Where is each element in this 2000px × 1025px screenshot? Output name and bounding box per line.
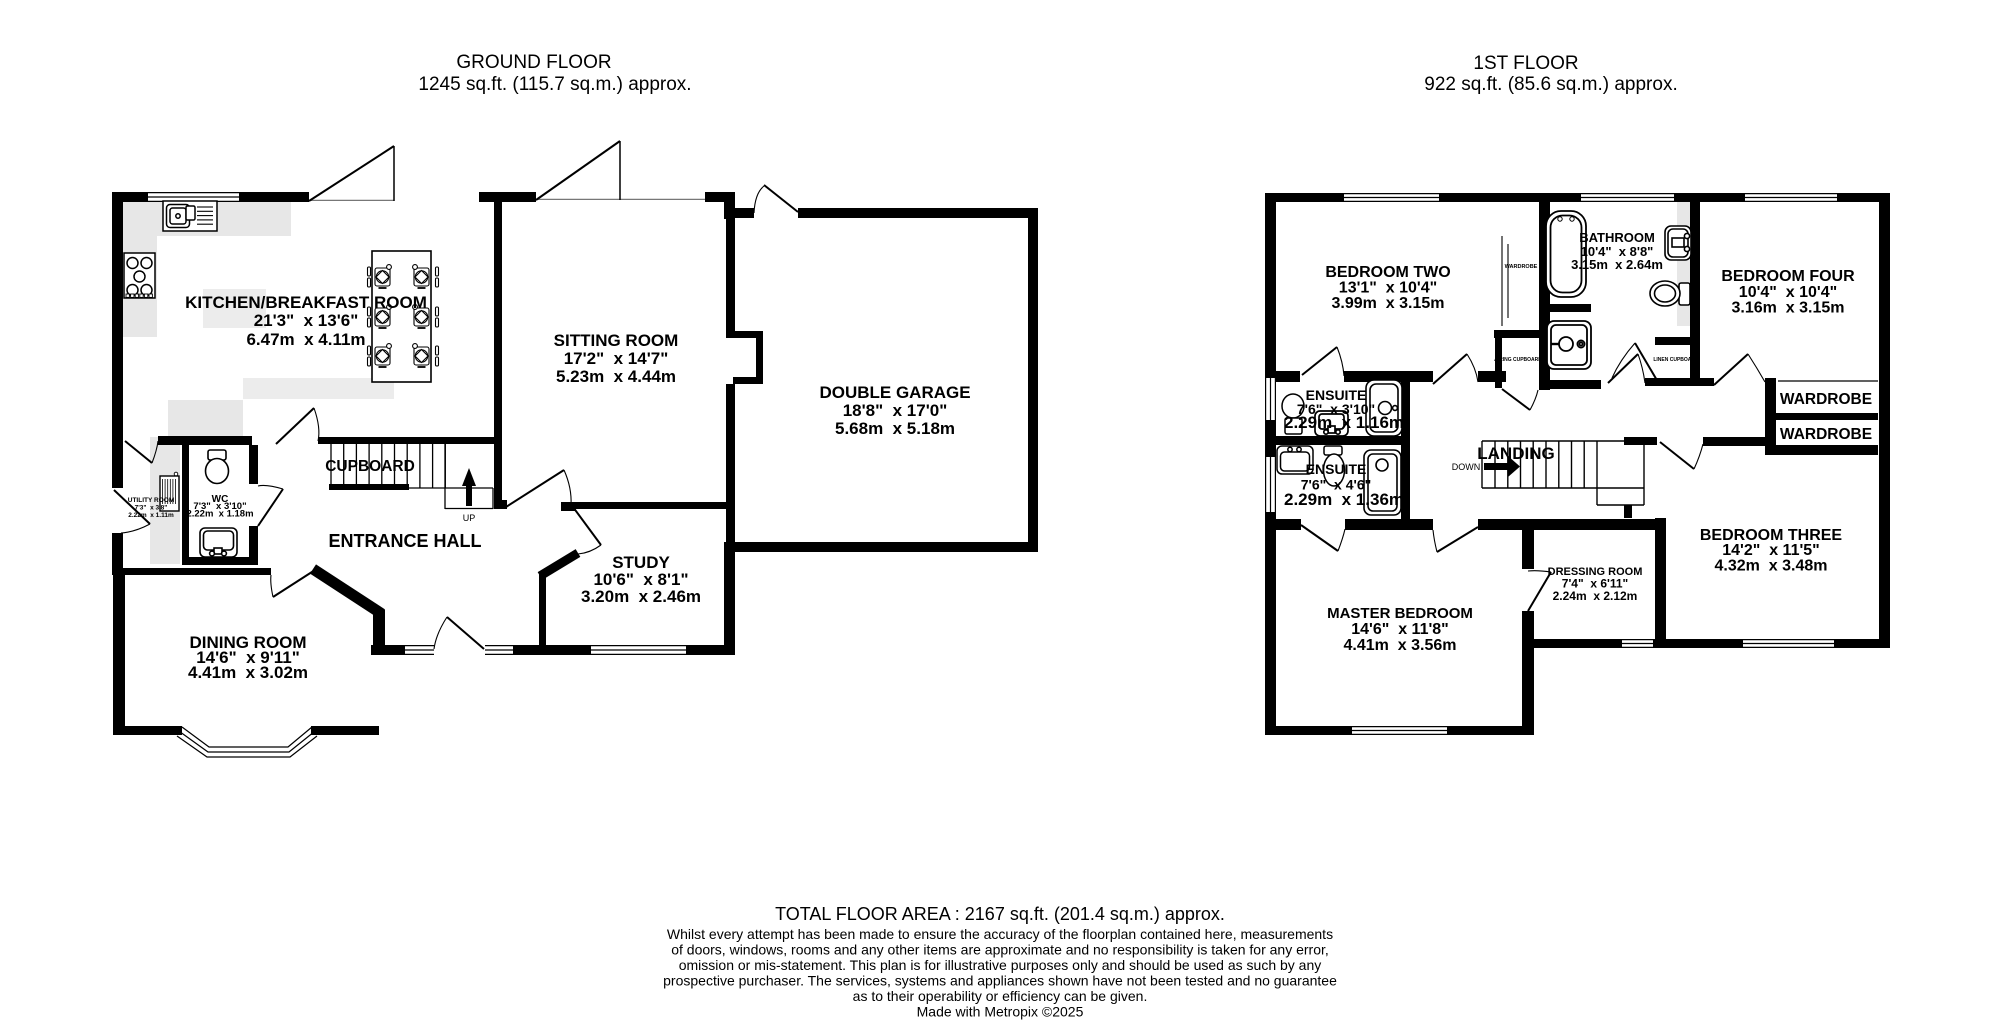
svg-text:BEDROOM FOUR: BEDROOM FOUR (1721, 268, 1855, 285)
svg-text:13'1" x 10'4": 13'1" x 10'4" (1339, 280, 1437, 297)
svg-text:4.41m x 3.02m: 4.41m x 3.02m (188, 663, 308, 682)
svg-text:1ST FLOOR: 1ST FLOOR (1473, 53, 1578, 74)
svg-text:14'6" x 11'8": 14'6" x 11'8" (1351, 621, 1449, 638)
svg-text:4.41m x 3.56m: 4.41m x 3.56m (1344, 637, 1457, 654)
svg-text:BATHROOM: BATHROOM (1579, 230, 1655, 245)
svg-text:3.99m x 3.15m: 3.99m x 3.15m (1332, 295, 1445, 312)
svg-text:WARDROBE: WARDROBE (1505, 264, 1538, 270)
svg-text:TOTAL FLOOR AREA : 2167 sq.ft.: TOTAL FLOOR AREA : 2167 sq.ft. (201.4 sq… (775, 904, 1225, 924)
svg-text:LANDING: LANDING (1477, 444, 1554, 463)
svg-text:ENTRANCE HALL: ENTRANCE HALL (329, 531, 482, 551)
svg-text:21'3" x 13'6": 21'3" x 13'6" (254, 311, 359, 330)
svg-text:5.68m x 5.18m: 5.68m x 5.18m (835, 419, 955, 438)
svg-text:AIRING CUPBOARD: AIRING CUPBOARD (1494, 357, 1542, 363)
svg-text:3.20m x 2.46m: 3.20m x 2.46m (581, 587, 701, 606)
svg-text:6.47m x 4.11m: 6.47m x 4.11m (246, 330, 365, 349)
svg-text:17'2" x 14'7": 17'2" x 14'7" (564, 349, 669, 368)
svg-text:7'3" x 3'8": 7'3" x 3'8" (135, 505, 168, 512)
svg-text:DOWN: DOWN (1452, 462, 1481, 472)
svg-text:Whilst every attempt has been: Whilst every attempt has been made to en… (667, 926, 1333, 942)
svg-text:prospective purchaser. The ser: prospective purchaser. The services, sys… (663, 973, 1337, 989)
svg-text:3.15m x 2.64m: 3.15m x 2.64m (1571, 257, 1663, 272)
svg-text:as to their operability or eff: as to their operability or efficiency ca… (853, 988, 1148, 1004)
svg-text:10'4" x 10'4": 10'4" x 10'4" (1739, 284, 1837, 301)
svg-text:2.29m x 1.36m: 2.29m x 1.36m (1284, 490, 1404, 509)
svg-text:3.16m x 3.15m: 3.16m x 3.15m (1732, 300, 1845, 317)
svg-text:LINEN CUPBOARD: LINEN CUPBOARD (1653, 357, 1699, 363)
svg-text:ENSUITE: ENSUITE (1306, 461, 1367, 477)
svg-text:BEDROOM TWO: BEDROOM TWO (1325, 264, 1450, 281)
svg-text:UTILITY ROOM: UTILITY ROOM (128, 497, 174, 504)
svg-text:4.32m x 3.48m: 4.32m x 3.48m (1715, 558, 1828, 575)
svg-text:5.23m x 4.44m: 5.23m x 4.44m (556, 367, 676, 386)
svg-text:Made with Metropix ©2025: Made with Metropix ©2025 (917, 1004, 1084, 1020)
svg-text:WARDROBE: WARDROBE (1780, 391, 1872, 408)
svg-text:WARDROBE: WARDROBE (1780, 426, 1872, 443)
svg-text:UP: UP (463, 513, 476, 523)
svg-text:1245 sq.ft. (115.7 sq.m.) appr: 1245 sq.ft. (115.7 sq.m.) approx. (418, 74, 691, 95)
svg-text:2.24m x 2.12m: 2.24m x 2.12m (1553, 589, 1638, 603)
svg-text:2.22m x 1.18m: 2.22m x 1.18m (186, 509, 253, 520)
svg-text:omission or mis-statement. Thi: omission or mis-statement. This plan is … (679, 957, 1322, 973)
svg-text:DOUBLE GARAGE: DOUBLE GARAGE (819, 383, 970, 402)
svg-text:2.29m x 1.16m: 2.29m x 1.16m (1284, 413, 1404, 432)
svg-text:KITCHEN/BREAKFAST ROOM: KITCHEN/BREAKFAST ROOM (185, 293, 427, 312)
svg-text:GROUND FLOOR: GROUND FLOOR (456, 52, 611, 73)
svg-text:CUPBOARD: CUPBOARD (325, 458, 415, 475)
svg-text:14'2" x 11'5": 14'2" x 11'5" (1722, 542, 1820, 559)
svg-text:922 sq.ft. (85.6 sq.m.) approx: 922 sq.ft. (85.6 sq.m.) approx. (1424, 74, 1677, 95)
svg-text:2.22m x 1.11m: 2.22m x 1.11m (128, 512, 174, 519)
svg-text:of doors, windows, rooms and a: of doors, windows, rooms and any other i… (671, 942, 1329, 958)
svg-text:SITTING ROOM: SITTING ROOM (554, 331, 679, 350)
svg-text:MASTER BEDROOM: MASTER BEDROOM (1327, 605, 1473, 622)
svg-text:18'8" x 17'0": 18'8" x 17'0" (843, 401, 948, 420)
